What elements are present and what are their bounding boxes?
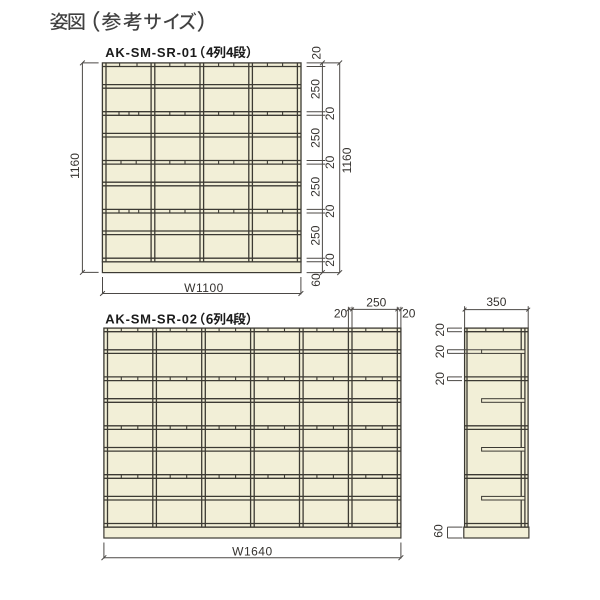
svg-text:250: 250 — [308, 128, 322, 148]
svg-text:20: 20 — [323, 204, 337, 218]
svg-text:250: 250 — [308, 225, 322, 245]
svg-text:60: 60 — [309, 273, 323, 287]
svg-text:AK-SM-SR-01: AK-SM-SR-01 — [105, 45, 198, 60]
svg-text:20: 20 — [323, 107, 337, 121]
svg-text:1160: 1160 — [68, 153, 82, 179]
svg-text:W1100: W1100 — [184, 281, 224, 295]
svg-text:20: 20 — [433, 345, 447, 359]
svg-text:250: 250 — [308, 176, 322, 196]
svg-text:1160: 1160 — [340, 147, 354, 173]
svg-text:250: 250 — [308, 79, 322, 99]
svg-text:20: 20 — [323, 253, 337, 267]
svg-text:20: 20 — [402, 306, 416, 320]
svg-text:20: 20 — [433, 372, 447, 386]
svg-text:W1640: W1640 — [232, 544, 273, 558]
svg-text:350: 350 — [486, 295, 506, 309]
svg-text:20: 20 — [334, 306, 348, 320]
svg-text:AK-SM-SR-02: AK-SM-SR-02 — [105, 312, 198, 327]
svg-text:60: 60 — [432, 524, 446, 538]
svg-text:20: 20 — [309, 46, 323, 60]
svg-text:20: 20 — [323, 155, 337, 169]
svg-text:250: 250 — [366, 296, 386, 310]
svg-text:20: 20 — [433, 323, 447, 337]
